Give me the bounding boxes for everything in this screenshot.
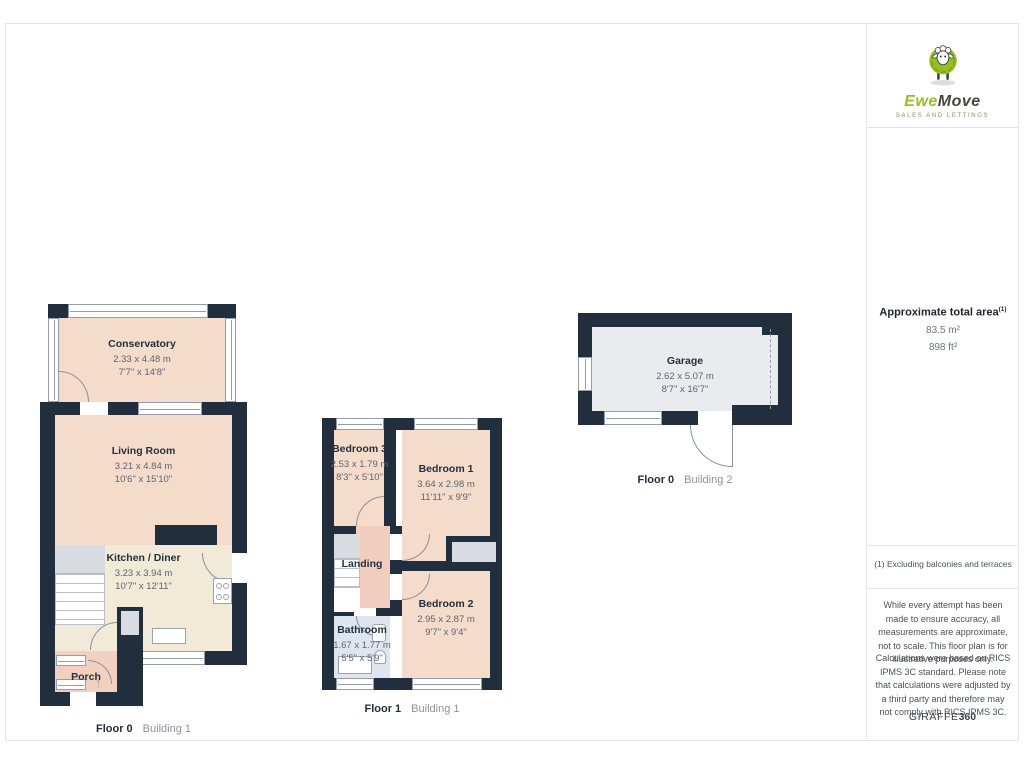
door-arc: [690, 425, 732, 467]
door-opening: [698, 411, 732, 425]
staircase: [55, 573, 105, 625]
door-opening: [70, 692, 96, 706]
wall: [232, 583, 247, 665]
total-area-block: Approximate total area(1) 83.5 m² 898 ft…: [868, 306, 1018, 353]
staircase: [334, 558, 360, 588]
window: [578, 357, 592, 391]
window: [48, 318, 59, 402]
brand-tagline: SALES AND LETTINGS: [866, 113, 1019, 119]
bath-icon: [338, 656, 372, 674]
sink-icon: [152, 628, 186, 644]
window: [225, 318, 236, 402]
total-area-ft2: 898 ft²: [868, 342, 1018, 353]
window: [414, 418, 478, 430]
wall: [778, 313, 792, 425]
sidebar-divider-under-logo: [867, 127, 1018, 128]
wall: [48, 304, 68, 318]
disclaimer-calculations: Calculations were based on RICS IPMS 3C …: [874, 652, 1012, 720]
room-garage: [592, 325, 778, 411]
window: [604, 411, 662, 425]
door-opening: [232, 553, 247, 583]
floor-label-building2-floor0: Floor 0Building 2: [578, 474, 792, 486]
chimney-recess: [452, 542, 496, 562]
toilet-icon: [372, 624, 386, 642]
brand-wordmark: EweMove: [866, 93, 1019, 111]
door-opening: [80, 402, 108, 415]
door-leaf: [732, 425, 733, 467]
garage-door-line: [770, 329, 771, 409]
window: [56, 655, 86, 666]
wall-recess: [121, 611, 139, 635]
stairs-landing: [55, 545, 105, 573]
window: [412, 678, 482, 690]
giraffe360-brand: GIRAFFE360: [866, 711, 1019, 723]
window: [68, 304, 208, 318]
total-area-m2: 83.5 m²: [868, 325, 1018, 336]
window: [56, 679, 86, 690]
wall: [732, 405, 778, 425]
ewemove-logo: EweMove SALES AND LETTINGS: [866, 40, 1019, 119]
sheep-icon: [918, 40, 968, 88]
stairs-landing: [334, 534, 360, 558]
hob-icon: [213, 578, 232, 604]
wall: [384, 430, 396, 526]
wall: [322, 418, 334, 690]
door-opening: [390, 574, 402, 600]
sidebar-divider: [866, 23, 867, 739]
wall: [578, 313, 792, 327]
floor-label-building1-floor1: Floor 1Building 1: [312, 703, 512, 715]
floorplan-building2-floor0: Garage 2.62 x 5.07 m 8'7" x 16'7": [578, 313, 792, 473]
area-footnote: (1) Excluding balconies and terraces: [868, 559, 1018, 569]
wall: [232, 402, 247, 553]
window: [336, 678, 374, 690]
footnote-marker: (1): [999, 306, 1007, 313]
sidebar-divider-above-footnote: [867, 545, 1018, 546]
total-area-title: Approximate total area(1): [868, 306, 1018, 319]
window: [138, 402, 202, 415]
floor-label-building1-floor0: Floor 0Building 1: [40, 723, 247, 735]
chimney-breast: [155, 525, 217, 545]
floorplan-building1-floor0: ↑ Conservatory 2.33 x 4.48 m 7'7" x 14'8…: [40, 298, 247, 710]
wall: [40, 402, 55, 706]
window: [336, 418, 384, 430]
floorplan-building1-floor1: Bedroom 3 2.53 x 1.79 m 8'3" x 5'10" Bed…: [312, 408, 512, 700]
sidebar-divider-below-footnote: [867, 588, 1018, 589]
entrance-arrow-icon: ↑: [95, 676, 102, 689]
window: [135, 651, 205, 665]
stairs-void: [334, 588, 360, 612]
wall: [208, 304, 236, 318]
sink-icon: [374, 650, 386, 664]
door-opening: [390, 534, 402, 560]
